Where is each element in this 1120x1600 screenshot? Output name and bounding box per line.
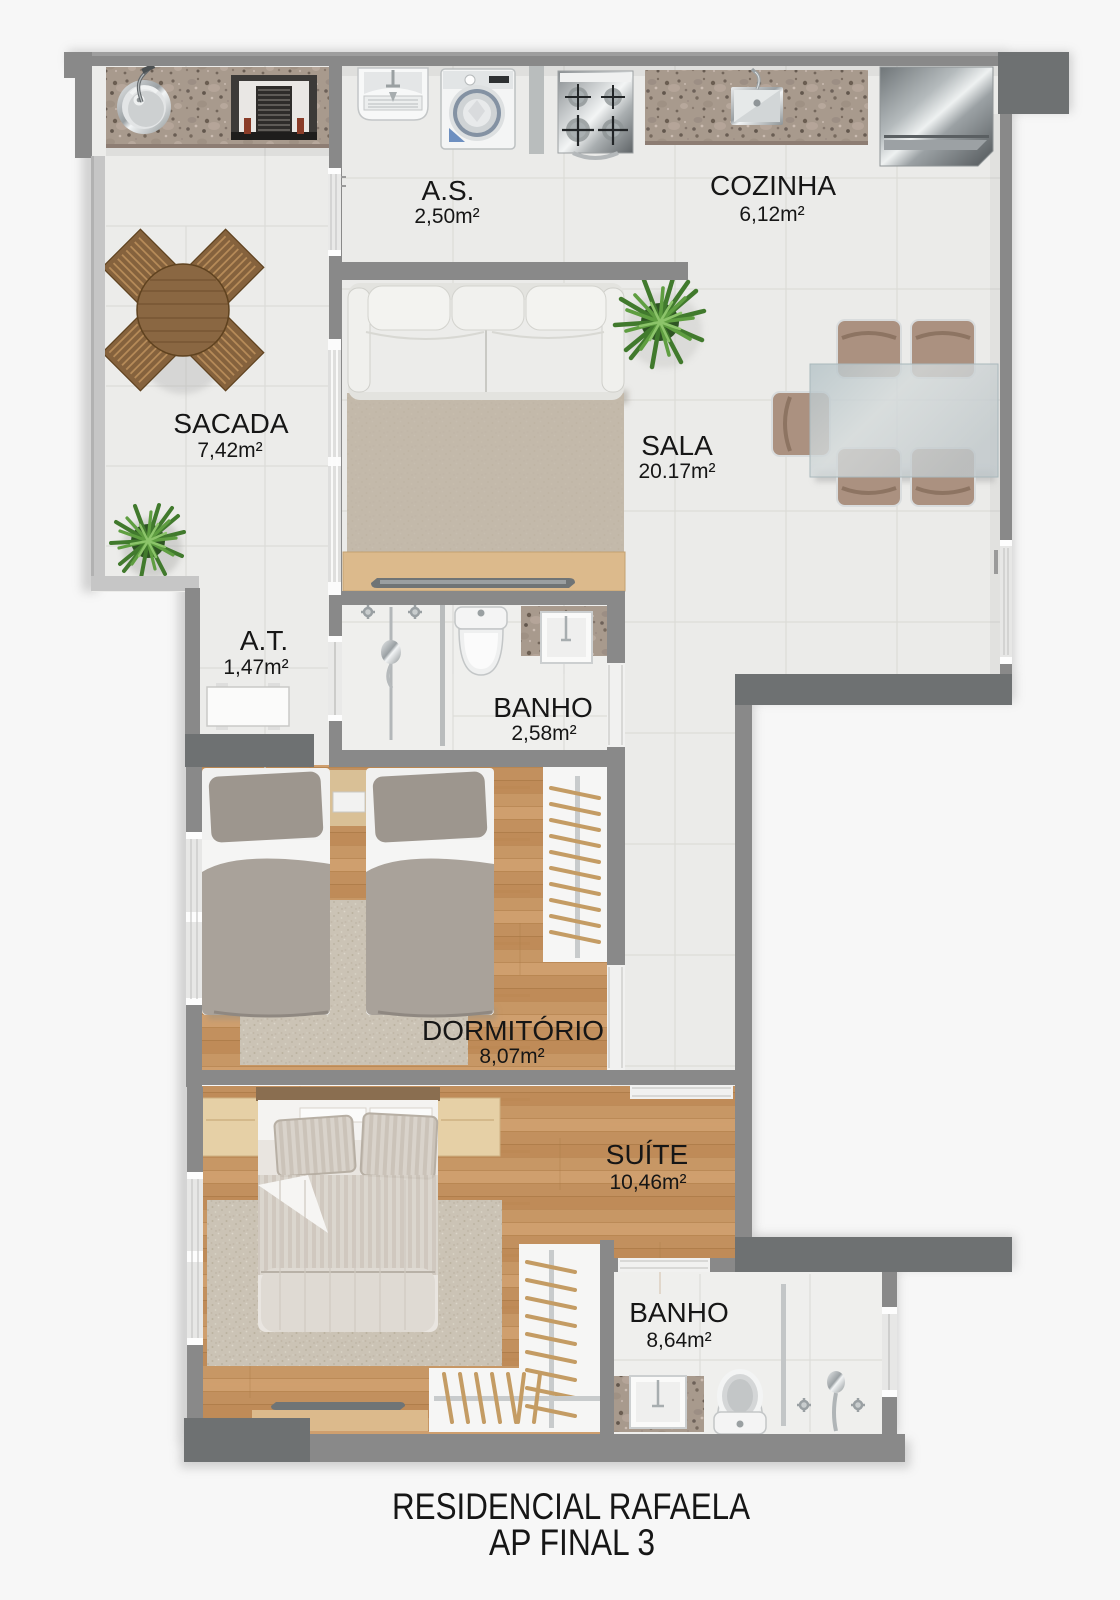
- svg-text:A.S.: A.S.: [422, 175, 475, 206]
- svg-text:6,12m²: 6,12m²: [739, 203, 804, 226]
- svg-text:8,07m²: 8,07m²: [479, 1045, 544, 1068]
- svg-text:2,58m²: 2,58m²: [511, 722, 576, 745]
- svg-text:7,42m²: 7,42m²: [197, 439, 262, 462]
- svg-text:SUÍTE: SUÍTE: [606, 1139, 688, 1170]
- svg-text:10,46m²: 10,46m²: [609, 1171, 686, 1194]
- svg-text:1,47m²: 1,47m²: [223, 656, 288, 679]
- svg-text:DORMITÓRIO: DORMITÓRIO: [422, 1015, 604, 1046]
- svg-text:A.T.: A.T.: [240, 625, 288, 656]
- svg-text:BANHO: BANHO: [629, 1297, 729, 1328]
- svg-text:AP FINAL 3: AP FINAL 3: [489, 1522, 655, 1563]
- svg-text:SACADA: SACADA: [173, 408, 288, 439]
- svg-text:20.17m²: 20.17m²: [638, 460, 715, 483]
- svg-text:BANHO: BANHO: [493, 692, 593, 723]
- svg-text:2,50m²: 2,50m²: [414, 205, 479, 228]
- svg-text:SALA: SALA: [641, 430, 713, 461]
- svg-text:RESIDENCIAL RAFAELA: RESIDENCIAL RAFAELA: [392, 1486, 750, 1527]
- svg-text:8,64m²: 8,64m²: [646, 1329, 711, 1352]
- svg-text:COZINHA: COZINHA: [710, 170, 836, 201]
